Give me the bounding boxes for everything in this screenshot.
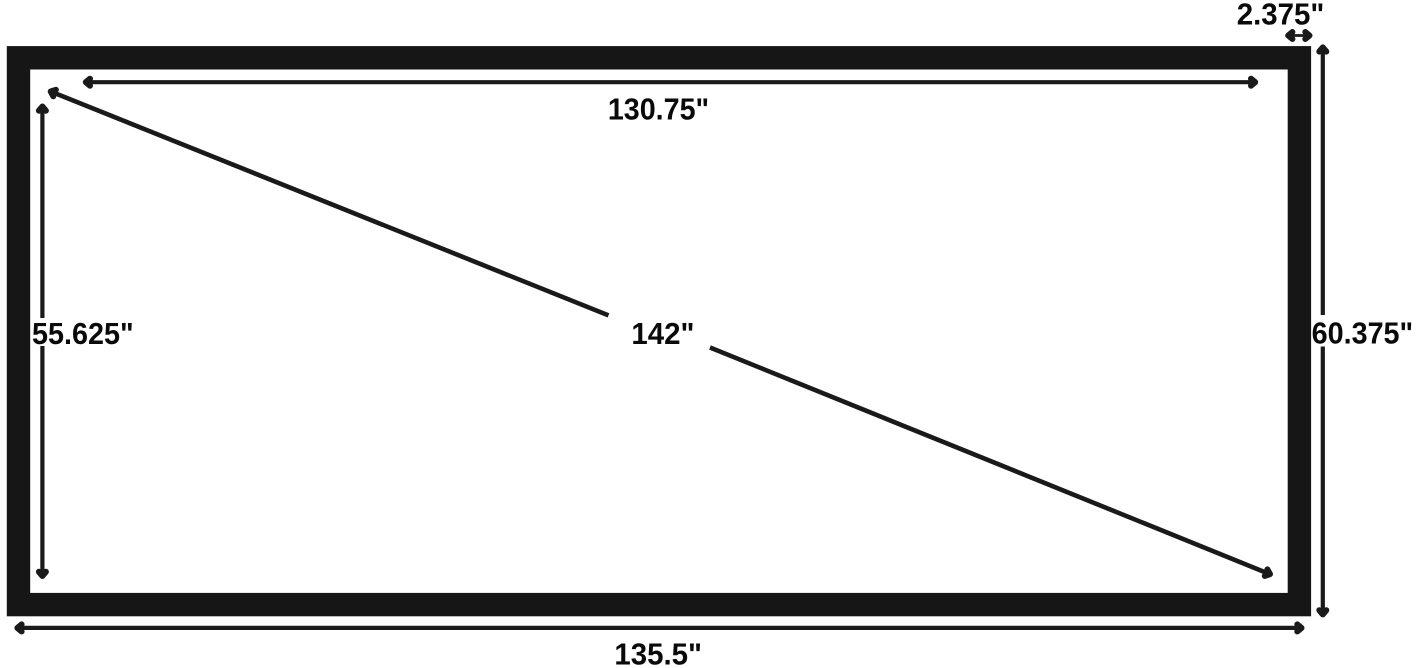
- svg-text:142": 142": [631, 317, 694, 351]
- svg-text:55.625": 55.625": [32, 317, 134, 351]
- svg-text:60.375": 60.375": [1312, 317, 1414, 351]
- svg-text:135.5": 135.5": [614, 638, 702, 668]
- svg-text:2.375": 2.375": [1237, 0, 1325, 32]
- svg-text:130.75": 130.75": [608, 92, 709, 126]
